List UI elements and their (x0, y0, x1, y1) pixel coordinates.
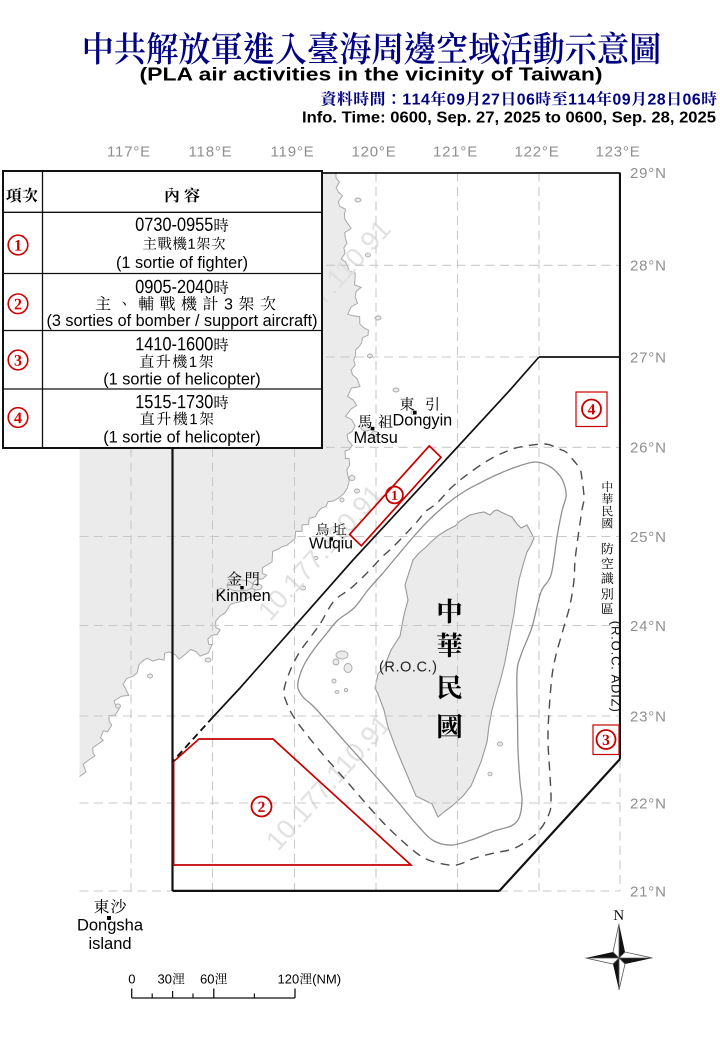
svg-text:23°N: 23°N (630, 708, 667, 725)
svg-text:(1 sortie of helicopter): (1 sortie of helicopter) (103, 370, 260, 388)
svg-text:26°N: 26°N (630, 440, 667, 457)
svg-text:117°E: 117°E (107, 143, 151, 160)
svg-text:Dongsha: Dongsha (77, 917, 144, 935)
svg-text:Matsu: Matsu (354, 429, 398, 447)
svg-text:island: island (88, 935, 131, 953)
svg-text:123°E: 123°E (595, 143, 640, 160)
svg-text:(PLA air activities in the vic: (PLA air activities in the vicinity of T… (140, 64, 603, 85)
svg-text:0: 0 (128, 972, 135, 987)
svg-text:(R.O.C.): (R.O.C.) (379, 659, 437, 675)
svg-text:Info. Time: 0600, Sep. 27, 202: Info. Time: 0600, Sep. 27, 2025 to 0600,… (302, 110, 716, 127)
svg-text:119°E: 119°E (271, 143, 315, 160)
svg-text:Dongyin: Dongyin (393, 411, 453, 429)
svg-text:27°N: 27°N (630, 349, 667, 366)
svg-text:28°N: 28°N (630, 258, 667, 275)
svg-text:21°N: 21°N (630, 883, 667, 900)
svg-text:Wuqiu: Wuqiu (309, 536, 353, 553)
svg-text:121°E: 121°E (433, 143, 478, 160)
svg-text:29°N: 29°N (630, 165, 667, 182)
svg-text:24°N: 24°N (630, 618, 667, 635)
svg-text:(3 sorties of bomber / support: (3 sorties of bomber / support aircraft) (47, 312, 318, 330)
svg-text:(1 sortie of fighter): (1 sortie of fighter) (116, 254, 248, 272)
svg-text:(1 sortie of helicopter): (1 sortie of helicopter) (103, 429, 260, 447)
svg-text:120°E: 120°E (351, 143, 396, 160)
svg-text:122°E: 122°E (514, 143, 559, 160)
svg-text:25°N: 25°N (630, 529, 667, 546)
svg-text:22°N: 22°N (630, 795, 667, 812)
svg-text:118°E: 118°E (189, 143, 233, 160)
svg-text:Kinmen: Kinmen (216, 587, 271, 605)
